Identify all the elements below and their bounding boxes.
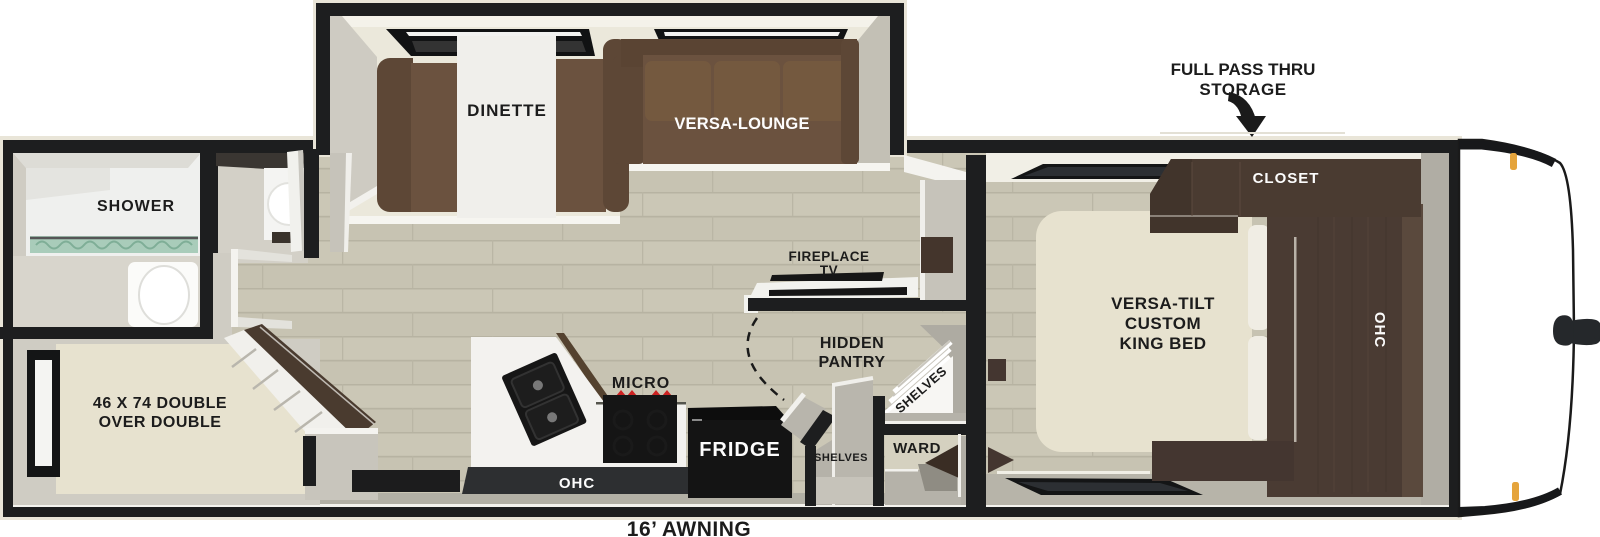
svg-text:CLOSET: CLOSET <box>1253 170 1320 187</box>
svg-text:CUSTOM: CUSTOM <box>1125 314 1201 333</box>
svg-text:OHC: OHC <box>1371 312 1388 348</box>
svg-text:.: . <box>1596 530 1597 535</box>
svg-text:46 X 74 DOUBLE: 46 X 74 DOUBLE <box>93 395 227 412</box>
svg-text:MICRO: MICRO <box>612 375 670 392</box>
svg-text:HIDDEN: HIDDEN <box>820 335 884 352</box>
svg-text:16’ AWNING: 16’ AWNING <box>627 518 751 537</box>
svg-text:STORAGE: STORAGE <box>1199 80 1286 99</box>
svg-text:FULL PASS THRU: FULL PASS THRU <box>1171 60 1316 79</box>
svg-text:OHC: OHC <box>559 475 595 492</box>
svg-text:OVER DOUBLE: OVER DOUBLE <box>99 414 222 431</box>
svg-text:SHOWER: SHOWER <box>97 198 175 215</box>
svg-text:FIREPLACE: FIREPLACE <box>788 249 869 264</box>
svg-text:VERSA-LOUNGE: VERSA-LOUNGE <box>674 115 809 133</box>
svg-text:VERSA-TILT: VERSA-TILT <box>1111 294 1215 313</box>
svg-text:FRIDGE: FRIDGE <box>699 439 781 461</box>
svg-text:PANTRY: PANTRY <box>819 354 886 371</box>
svg-text:WARD: WARD <box>893 440 941 457</box>
svg-text:KING BED: KING BED <box>1119 334 1206 353</box>
svg-text:SHELVES: SHELVES <box>814 452 868 464</box>
svg-text:DINETTE: DINETTE <box>467 101 547 120</box>
svg-text:TV: TV <box>820 263 838 278</box>
